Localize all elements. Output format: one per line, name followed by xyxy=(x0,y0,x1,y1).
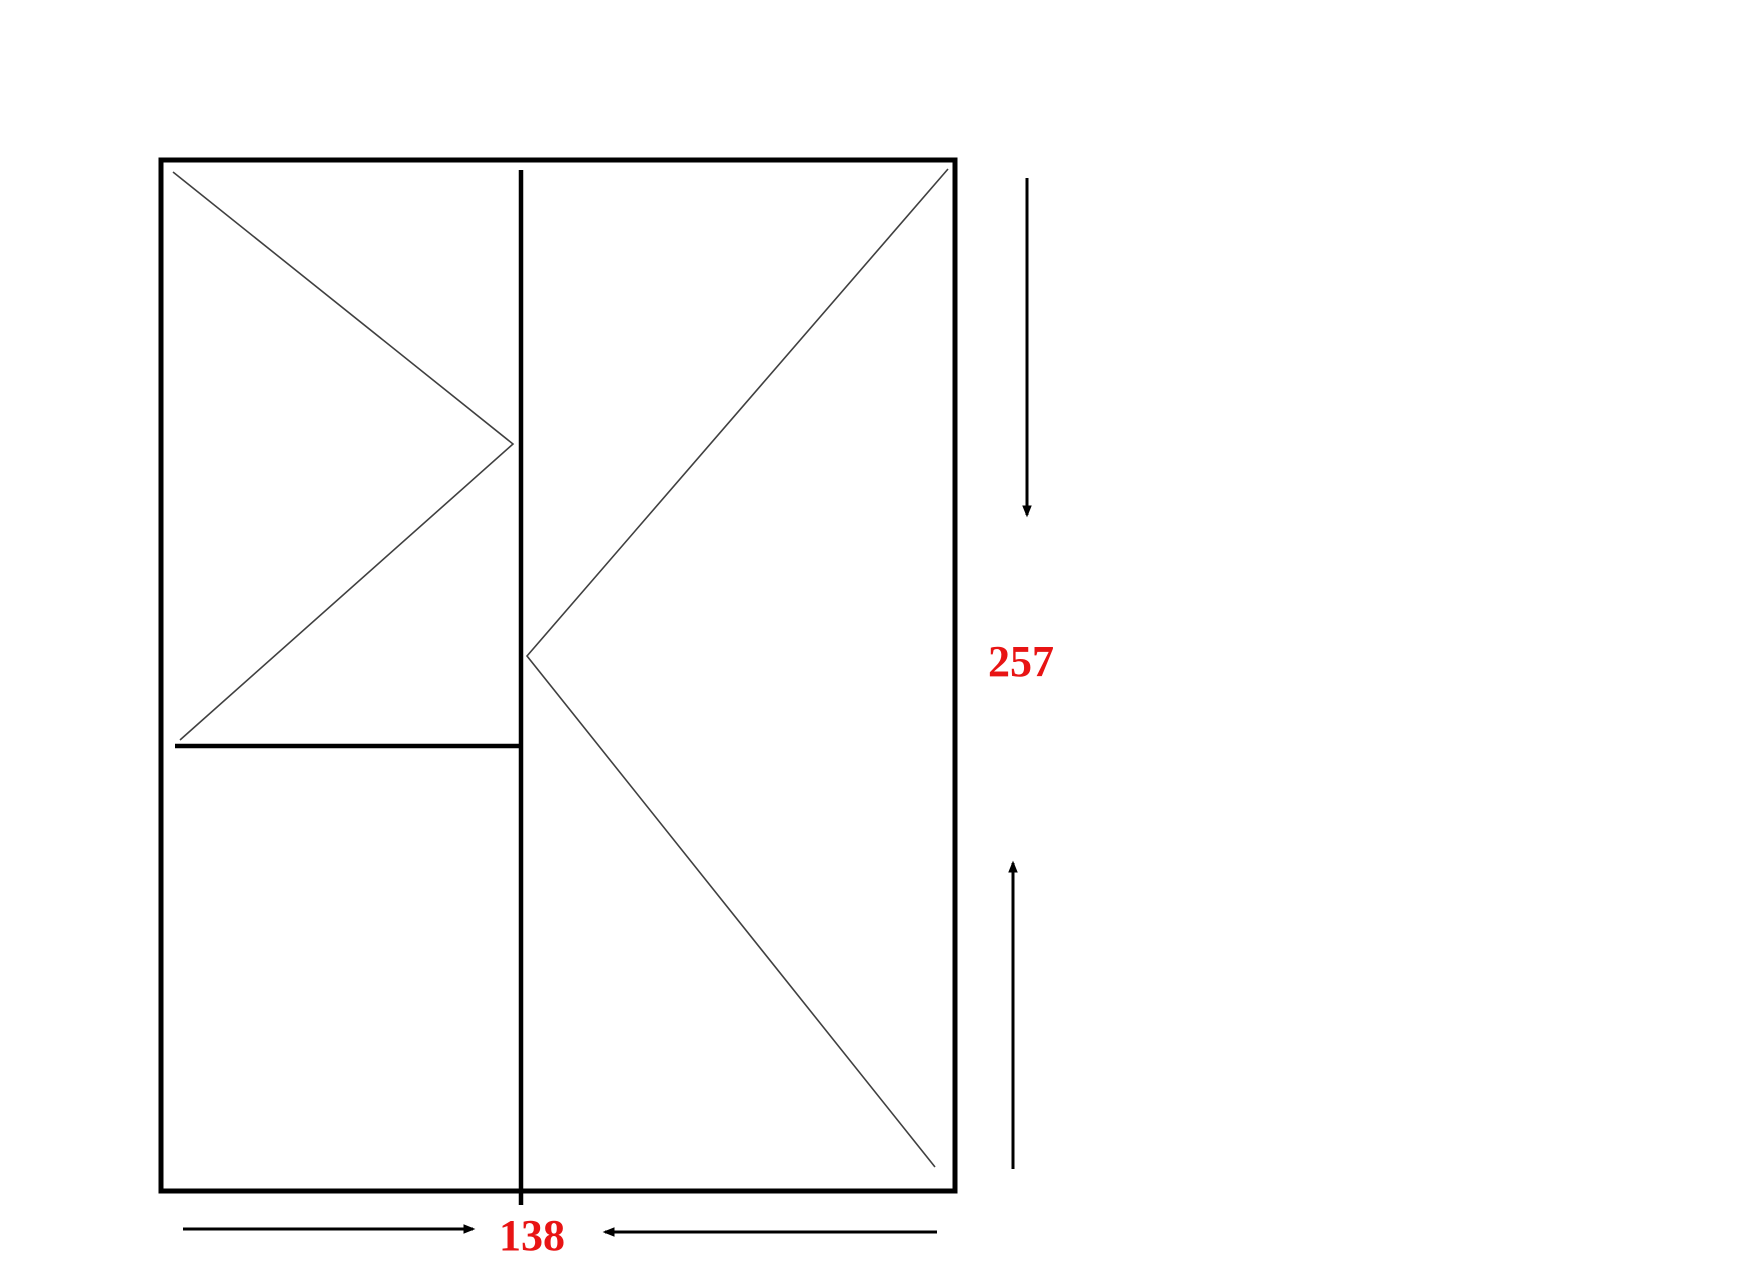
outer-frame xyxy=(161,160,955,1191)
height-dimension-label: 257 xyxy=(988,637,1054,686)
width-dimension-label: 138 xyxy=(499,1211,565,1260)
right-sash-opening-symbol xyxy=(527,169,948,1167)
left-sash-opening-symbol xyxy=(173,172,513,740)
drawing-canvas: 257 138 xyxy=(0,0,1748,1287)
dimension-layer: 257 138 xyxy=(183,178,1054,1260)
frame-layer xyxy=(161,160,955,1205)
window-elevation-svg: 257 138 xyxy=(0,0,1748,1287)
opening-symbol-layer xyxy=(173,169,948,1167)
